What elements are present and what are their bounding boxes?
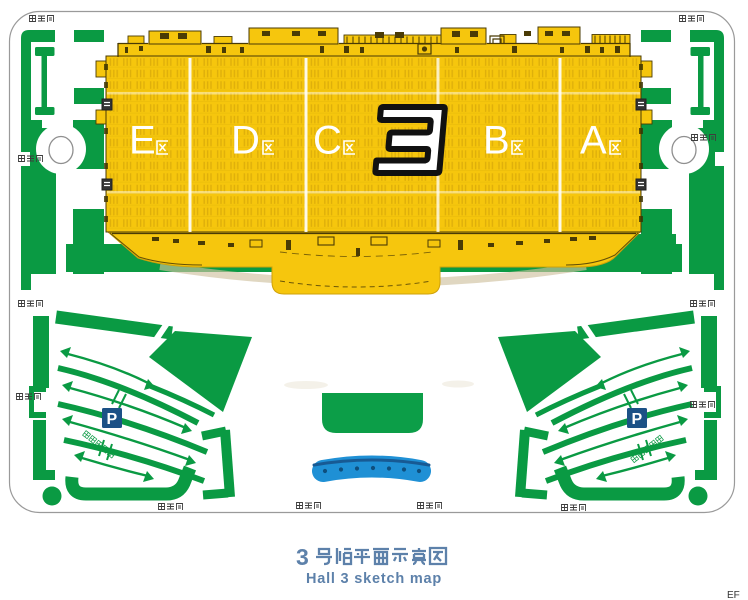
svg-text:Hall 3 sketch map: Hall 3 sketch map	[306, 571, 442, 587]
svg-text:D: D	[231, 119, 260, 163]
svg-text:C: C	[313, 119, 342, 163]
svg-text:EF: EF	[727, 590, 740, 600]
svg-text:A: A	[580, 119, 607, 163]
svg-text:B: B	[483, 119, 510, 163]
svg-text:P: P	[632, 411, 643, 428]
svg-text:3: 3	[296, 544, 309, 570]
svg-text:E: E	[129, 119, 156, 163]
svg-text:P: P	[107, 411, 118, 428]
